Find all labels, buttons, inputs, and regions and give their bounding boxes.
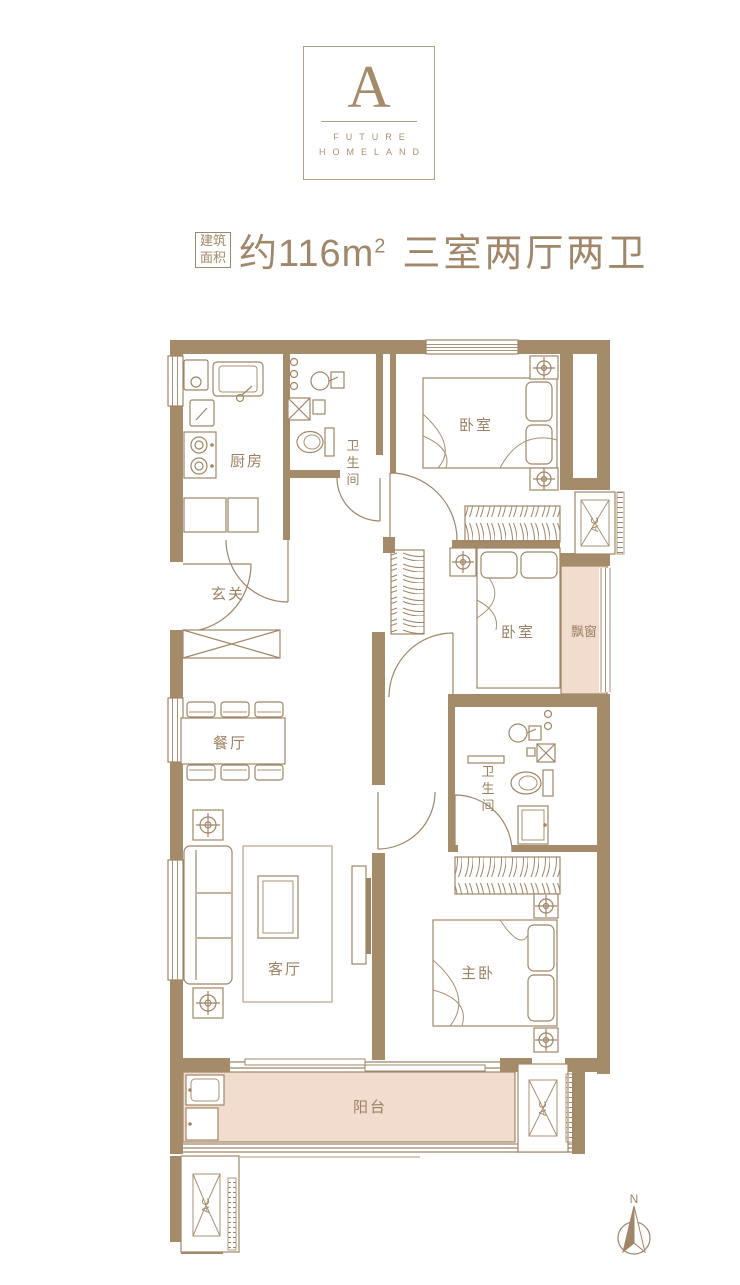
cabinet-knob [543,823,547,827]
pillow [528,925,554,971]
ac-vent-strip [617,492,624,554]
balcony-area [183,1072,515,1142]
floorplan-page: A FUTURE HOMELAND 建筑 面积 约116m2 三室两厅两卫 [0,0,740,1285]
pillow [526,425,552,464]
wall-segment [183,1058,230,1072]
wall-segment [597,340,610,490]
bath1-label-char: 间 [346,472,359,487]
master-bedroom-label: 主卧 [461,965,495,982]
wardrobe [455,857,560,894]
wall-segment [376,354,383,455]
shower-dot [545,723,552,730]
stove [184,432,216,478]
bath1-label-char: 卫 [346,438,359,453]
foyer-label: 玄关 [211,586,245,603]
bath2-label-char: 生 [481,781,494,796]
tv-cabinet [352,866,366,964]
wall-segment [372,853,385,1060]
ac-label: AC [590,516,601,532]
balcony-sliding-door [230,1059,500,1071]
shower-dot [291,359,298,366]
ac-label: AC [201,1197,212,1213]
kitchen-cabinet [184,498,226,532]
ac-label: AC [538,1100,549,1116]
window-kitchen-left [168,356,183,406]
water-heater [184,360,208,390]
washer-knob [188,1088,192,1092]
bath1-label-char: 生 [346,455,359,470]
window-bedroom1-top [426,340,518,354]
washbasin-counter [331,372,344,388]
dining-label: 餐厅 [213,735,247,752]
toilet-tank [325,428,334,456]
north-label: N [630,1192,639,1206]
kitchen-label: 厨房 [230,453,264,470]
wall-segment [283,354,290,540]
wall-segment [512,845,597,852]
wall-segment [572,1142,585,1154]
bedroom2-furniture [450,548,560,688]
pillow [481,552,517,578]
living-furniture [184,810,371,1018]
kitchen-sink [213,362,263,396]
coffee-table [258,876,298,938]
ac-unit-top-right: AC [575,492,624,554]
tv-screen [366,878,371,954]
wall-segment [372,632,385,785]
wall-segment [560,354,573,490]
shower-dot [545,711,552,718]
chair [187,702,215,717]
wall-segment [170,1156,181,1242]
toilet-bowl [297,432,323,453]
wall-segment [390,354,396,473]
toilet-bowl-inner [519,776,537,790]
wall-segment [170,1142,183,1154]
wall-segment [597,694,610,1074]
balcony-fixtures [186,1075,224,1140]
wall-segment [290,470,340,478]
stove-knob [210,464,214,468]
living-label: 客厅 [268,961,302,978]
washbasin-counter [529,726,541,740]
bath2-shelf [468,756,504,763]
pillow [526,382,552,421]
pillow [528,975,554,1021]
bedroom1-door [390,473,457,540]
bath1-box [313,400,325,414]
wall-segment [572,1072,585,1154]
cabinet-knob [188,1122,192,1126]
wardrobe [465,506,560,542]
wall-segment [448,694,610,707]
toilet-tank [543,770,553,796]
shower-dot [291,383,298,390]
chair [255,702,283,717]
washbasin [509,724,527,742]
ac-vent-strip [228,1178,236,1250]
ac-unit-bottom-left: AC [181,1156,420,1252]
compass-needle-light [634,1206,645,1252]
balcony-railing [183,1144,572,1152]
wall-segment [448,845,458,852]
pillow [521,552,557,578]
chair [255,765,283,780]
bath2-label-char: 卫 [481,764,494,779]
chair [221,765,249,780]
chair [221,702,249,717]
shower-dot [291,371,298,378]
bedroom1-label: 卧室 [459,417,493,434]
ac-unit-bottom-right: AC [518,1064,573,1152]
bath1-fixtures [288,359,344,457]
wardrobe [391,550,424,634]
foyer-fixtures [183,630,280,658]
bath2-box [527,748,535,756]
wall-segment [560,478,610,490]
north-compass: N [618,1192,650,1254]
balcony-label: 阳台 [353,1099,387,1116]
kitchen-cabinet [228,498,258,532]
bath2-label-char: 间 [481,798,494,813]
toilet-bowl-inner [304,435,320,449]
bedroom2-label: 卧室 [501,624,535,641]
master-furniture [433,857,560,1052]
stove-knob [210,443,214,447]
ac-vent-strip [566,1074,573,1142]
washbasin [311,372,329,390]
chair [187,765,215,780]
bay-window-label: 飘窗 [571,624,597,639]
kitchen-fixtures [184,360,263,532]
sofa [184,846,232,984]
window-living-left [168,860,183,980]
compass-needle-dark [623,1206,634,1252]
wall-segment [556,553,610,566]
wall-segment [565,1058,610,1072]
wall-segment [170,340,610,354]
hall-door [378,792,435,849]
bedroom1-furniture [423,356,560,542]
bedroom2-door [389,633,453,697]
floorplan-svg: AC AC AC 厨房 卫 生 间 卧室 玄关 卧室 飘窗 [0,0,740,1285]
wall-segment [448,707,455,845]
